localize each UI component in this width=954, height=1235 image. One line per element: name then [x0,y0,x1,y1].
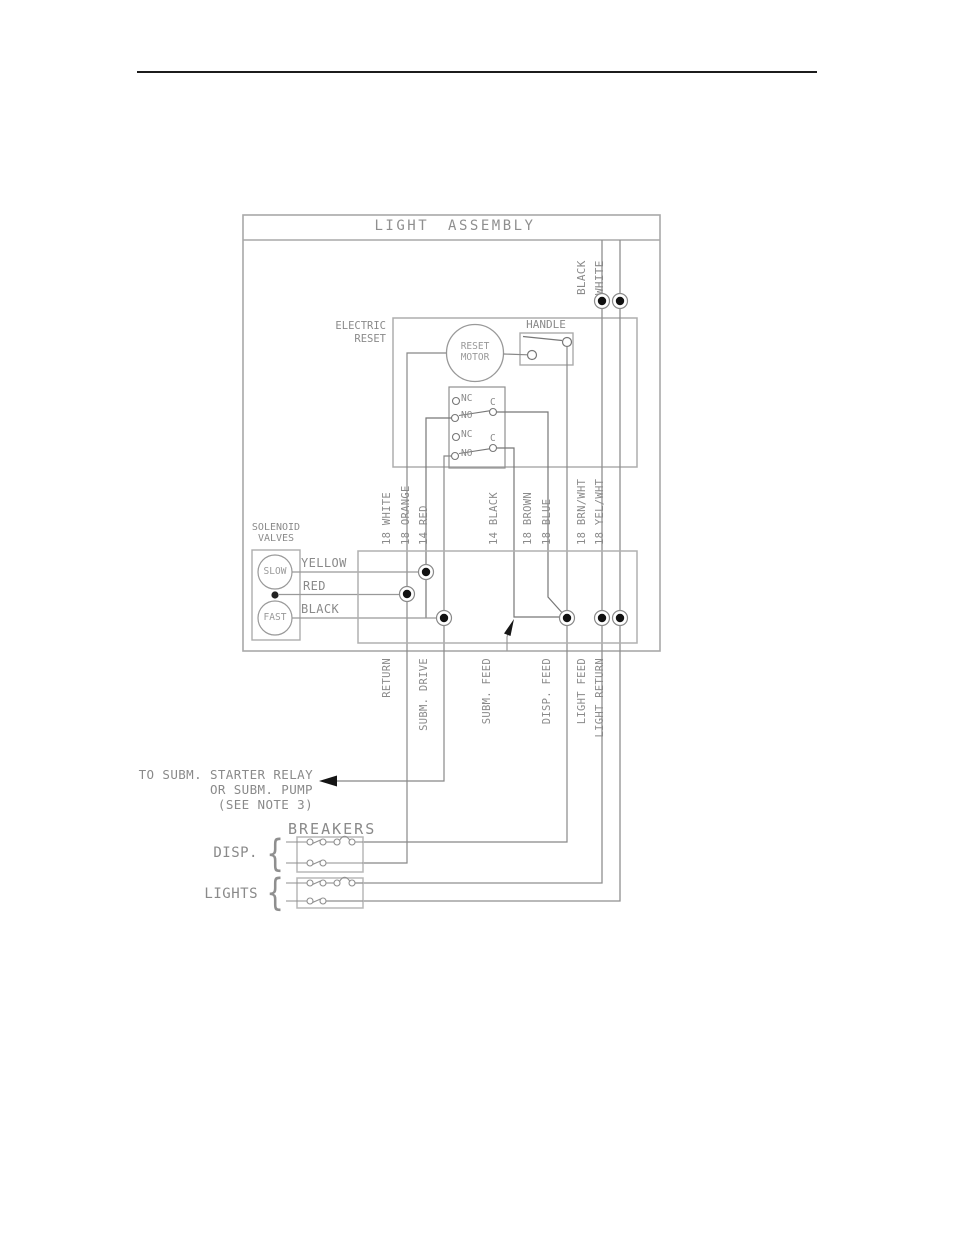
top-wire-label-white: WHITE [593,233,606,295]
black-wire-label: BLACK [301,603,339,616]
red-wire-label: RED [303,580,326,593]
lights-label: LIGHTS [198,887,258,902]
nc1-label: NC [461,394,472,404]
terminal-yellow [419,565,434,580]
note-line-3: (SEE NOTE 3) [133,798,313,812]
wire-label-light-feed: LIGHT FEED [576,658,589,758]
c1-contact [490,409,497,416]
reset-motor-label-2: MOTOR [445,353,505,363]
nc2-label: NC [461,430,472,440]
c2-label: C [490,434,496,444]
manual-page: LIGHT ASSEMBLY BLACK WHITE ELECTRIC RESE… [0,0,954,1235]
handle-contact-right [563,338,572,347]
terminal-black-solenoid [437,611,452,626]
no1-label: NO [461,411,472,421]
terminal-disp-feed [560,611,575,626]
wire-black-light-feed [355,240,602,883]
disp-brace: { [267,835,284,872]
no2-contact [452,453,459,460]
fast-valve-label: FAST [250,613,300,623]
c2-contact [490,445,497,452]
note-line-1: TO SUBM. STARTER RELAY [133,768,313,782]
c1-label: C [490,398,496,408]
wire-label-light-return: LIGHT RETURN [594,658,607,758]
handle-label: HANDLE [516,319,576,331]
solenoid-label-2: VALVES [240,533,312,544]
terminal-white-top [613,294,628,309]
terminal-red [400,587,415,602]
wire-label-18-blue: 18 BLUE [541,455,554,545]
terminal-black-top [595,294,610,309]
wire-label-18-yel-wht: 18 YEL/WHT [594,455,607,545]
solenoid-label-1: SOLENOID [240,522,312,533]
solenoid-common-dot [271,591,278,598]
yellow-wire-label: YELLOW [301,557,347,570]
disp-label: DISP. [198,846,258,861]
wiring-diagram-linework [0,0,954,1235]
note-line-2: OR SUBM. PUMP [133,783,313,797]
no2-label: NO [461,449,472,459]
handle-contact-left [528,351,537,360]
wire-white-return [363,353,447,863]
nc1-contact [453,398,460,405]
slow-valve-label: SLOW [250,567,300,577]
reset-motor-label-1: RESET [445,342,505,352]
wire-label-18-orange: 18 ORANGE [400,455,413,545]
wire-label-18-brown: 18 BROWN [522,455,535,545]
lights-brace: { [267,874,284,911]
wire-label-subm-feed: SUBM. FEED [481,658,494,758]
wire-label-return: RETURN [381,658,394,758]
breakers-title: BREAKERS [288,821,376,838]
wire-label-subm-drive: SUBM. DRIVE [418,658,431,758]
no1-contact [452,415,459,422]
electric-reset-label-2: RESET [306,334,386,346]
terminal-light-return [613,611,628,626]
wire-label-14-black: 14 BLACK [488,455,501,545]
terminal-light-feed [595,611,610,626]
subm-drive-arrowhead [319,776,337,787]
handle-blade [523,337,562,341]
motor-to-handle-wire [504,354,528,355]
diagram-title: LIGHT ASSEMBLY [330,219,580,234]
electric-reset-box [393,318,637,467]
electric-reset-label-1: ELECTRIC [306,321,386,333]
subm-feed-arrowhead [504,619,514,636]
nc2-contact [453,434,460,441]
wire-label-disp-feed: DISP. FEED [541,658,554,758]
wire-label-18-brn-wht: 18 BRN/WHT [576,455,589,545]
wire-label-14-red: 14 RED [418,455,431,545]
wire-label-18-white: 18 WHITE [381,455,394,545]
top-wire-label-black: BLACK [575,233,588,295]
